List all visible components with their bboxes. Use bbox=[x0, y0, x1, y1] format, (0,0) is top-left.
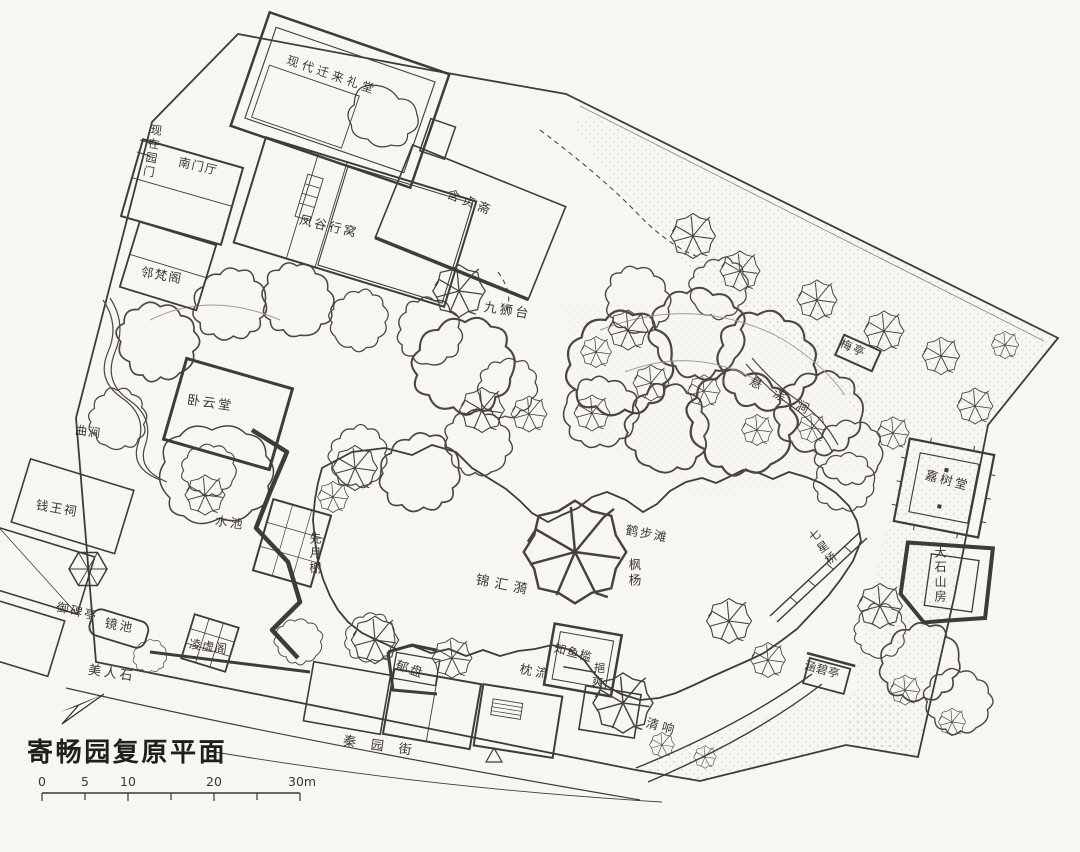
building-woyuntang bbox=[164, 358, 293, 469]
scale-label-0: 0 bbox=[38, 774, 46, 789]
stipple-texture bbox=[560, 115, 1056, 782]
scale-label-5: 5 bbox=[81, 774, 89, 789]
label-qujian: 曲涧 bbox=[74, 424, 102, 440]
label-dashishanfang: 大石山房 bbox=[934, 546, 946, 605]
label-xianyuexie: 先月榭 bbox=[309, 532, 321, 576]
label-yishuang: 挹爽 bbox=[590, 661, 605, 690]
building-qianwangci bbox=[0, 454, 134, 684]
building-fengguxingwo bbox=[234, 137, 477, 307]
scale-bar bbox=[42, 793, 300, 801]
label-fengyang: 枫杨 bbox=[627, 558, 640, 589]
scale-label-20: 20 bbox=[206, 774, 222, 789]
building-linfange bbox=[120, 222, 216, 310]
stream-qujian bbox=[103, 298, 167, 482]
scale-label-30m: 30m bbox=[288, 774, 316, 789]
scale-label-10: 10 bbox=[120, 774, 136, 789]
garden-plan-page: 寄畅园复原平面 现代迁来礼堂 现在园门 南门厅 凤谷行窝 邻梵阁 含贞斋 九狮台… bbox=[0, 0, 1080, 852]
north-arrow-icon bbox=[60, 694, 104, 724]
plan-title: 寄畅园复原平面 bbox=[27, 732, 227, 769]
pond-shuichi bbox=[160, 426, 274, 524]
